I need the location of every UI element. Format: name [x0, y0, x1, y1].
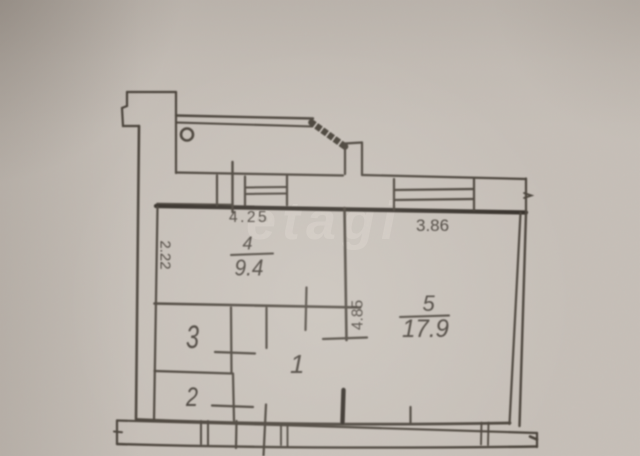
svg-text:4: 4: [243, 234, 253, 254]
svg-text:4.85: 4.85: [350, 300, 367, 330]
svg-text:1: 1: [290, 349, 304, 379]
svg-text:2: 2: [185, 382, 198, 412]
svg-text:3.86: 3.86: [416, 216, 449, 235]
svg-text:2.22: 2.22: [157, 240, 174, 269]
svg-text:3: 3: [186, 319, 199, 355]
svg-text:4.25: 4.25: [229, 209, 269, 226]
svg-text:5: 5: [423, 291, 436, 316]
svg-text:9.4: 9.4: [235, 255, 264, 281]
svg-text:17.9: 17.9: [402, 315, 449, 343]
